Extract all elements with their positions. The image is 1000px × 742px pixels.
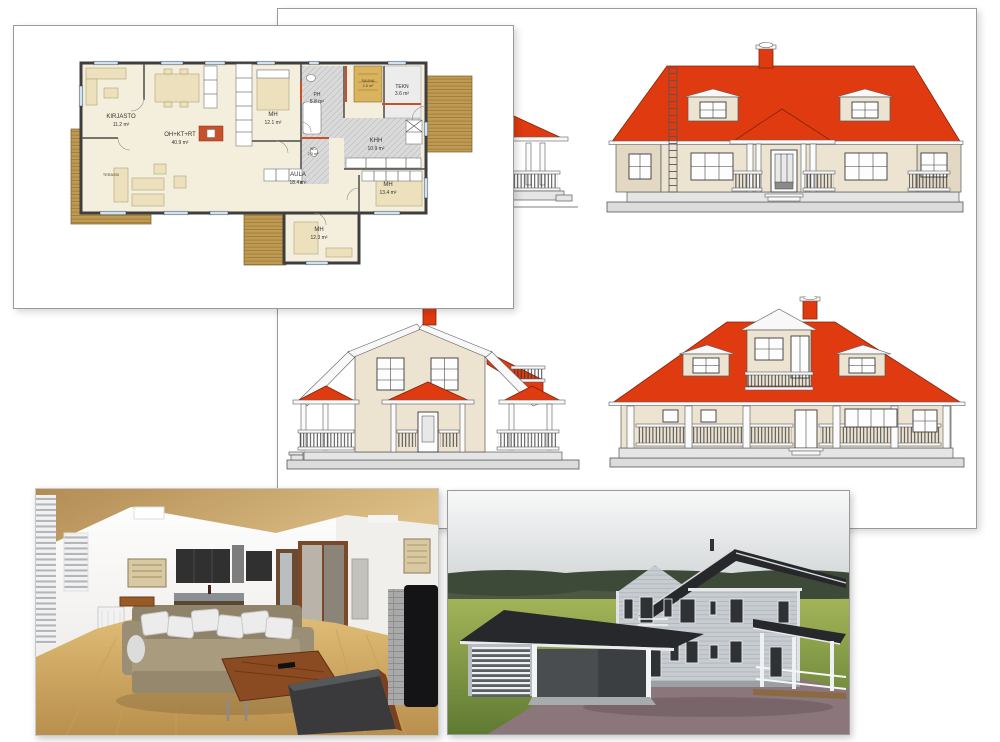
room-area-tekn: 3.6 m² — [395, 91, 410, 97]
room-area-wc: 2.3 m² — [308, 152, 319, 156]
room-label-tekn: TEKN — [395, 84, 409, 90]
room-label-terassi: TERASSI — [103, 173, 119, 177]
collage-canvas: KIRJASTO 11.2 m² OH+KT+RT 40.9 m² MH 12.… — [0, 0, 1000, 742]
room-area-mh3: 12.3 m² — [311, 235, 328, 241]
room-area-aula: 18.4 m² — [290, 180, 307, 186]
floorplan-sheet[interactable]: KIRJASTO 11.2 m² OH+KT+RT 40.9 m² MH 12.… — [13, 25, 514, 309]
room-area-sauna: 2.5 m² — [363, 84, 374, 88]
side-elevation — [285, 302, 581, 474]
rear-center-dormer — [741, 309, 817, 390]
interior-render[interactable] — [35, 488, 439, 736]
room-area-khh: 10.9 m² — [368, 146, 385, 152]
side-left-porch — [289, 386, 359, 460]
exterior-render-image — [448, 491, 849, 734]
room-area-mh1: 12.1 m² — [265, 120, 282, 126]
room-label-mh3: MH — [314, 227, 323, 233]
rear-elevation — [607, 296, 967, 472]
room-label-mh1: MH — [268, 112, 277, 118]
exterior-render[interactable] — [447, 490, 850, 735]
room-area-ph: 5.8 m² — [310, 99, 325, 105]
room-area-mh2: 13.4 m² — [380, 190, 397, 196]
room-label-aula: AULA — [290, 172, 306, 178]
front-elevation — [605, 42, 967, 214]
room-label-sauna: SAUNA — [361, 79, 375, 83]
interior-render-image — [36, 489, 438, 735]
side-right-porch — [497, 386, 565, 450]
room-label-wc: WC — [310, 147, 317, 151]
room-area-kirjasto: 11.2 m² — [113, 122, 130, 128]
room-label-oh-kt-rt: OH+KT+RT — [164, 132, 196, 138]
room-label-ph: PH — [314, 92, 321, 98]
room-label-mh2: MH — [383, 182, 392, 188]
roof-ladder — [669, 68, 677, 192]
room-area-oh-kt-rt: 40.9 m² — [172, 140, 189, 146]
floorplan-drawing: KIRJASTO 11.2 m² OH+KT+RT 40.9 m² MH 12.… — [14, 26, 513, 308]
room-label-kirjasto: KIRJASTO — [106, 114, 136, 120]
room-label-khh: KHH — [370, 138, 383, 144]
